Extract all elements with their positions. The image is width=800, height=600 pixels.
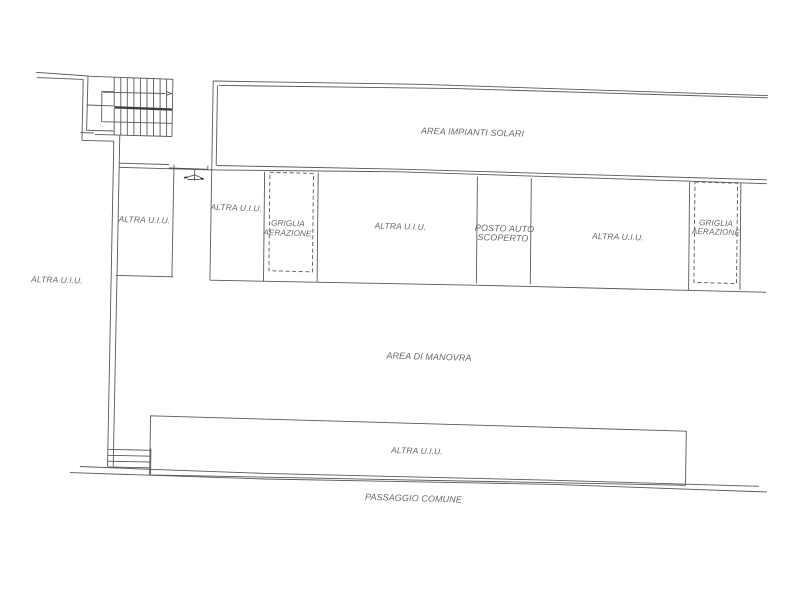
svg-text:PASSAGGIO COMUNE: PASSAGGIO COMUNE	[365, 492, 463, 505]
svg-text:ALTRA U.I.U.: ALTRA U.I.U.	[373, 220, 426, 232]
svg-text:AREA IMPIANTI SOLARI: AREA IMPIANTI SOLARI	[420, 126, 525, 139]
svg-text:ALTRA U.I.U.: ALTRA U.I.U.	[117, 214, 170, 226]
svg-text:ALTRA U.I.U.: ALTRA U.I.U.	[30, 274, 83, 286]
svg-text:ALTRA U.I.U.: ALTRA U.I.U.	[591, 231, 644, 243]
svg-text:GRIGLIA: GRIGLIA	[271, 218, 306, 228]
svg-text:AERAZIONE: AERAZIONE	[262, 228, 312, 238]
svg-text:AERAZIONE: AERAZIONE	[691, 227, 741, 237]
svg-text:ALTRA U.I.U.: ALTRA U.I.U.	[390, 445, 443, 457]
svg-text:ALTRA U.I.U.: ALTRA U.I.U.	[209, 202, 262, 214]
svg-text:AREA DI MANOVRA: AREA DI MANOVRA	[385, 350, 471, 363]
svg-text:SCOPERTO: SCOPERTO	[477, 232, 528, 244]
